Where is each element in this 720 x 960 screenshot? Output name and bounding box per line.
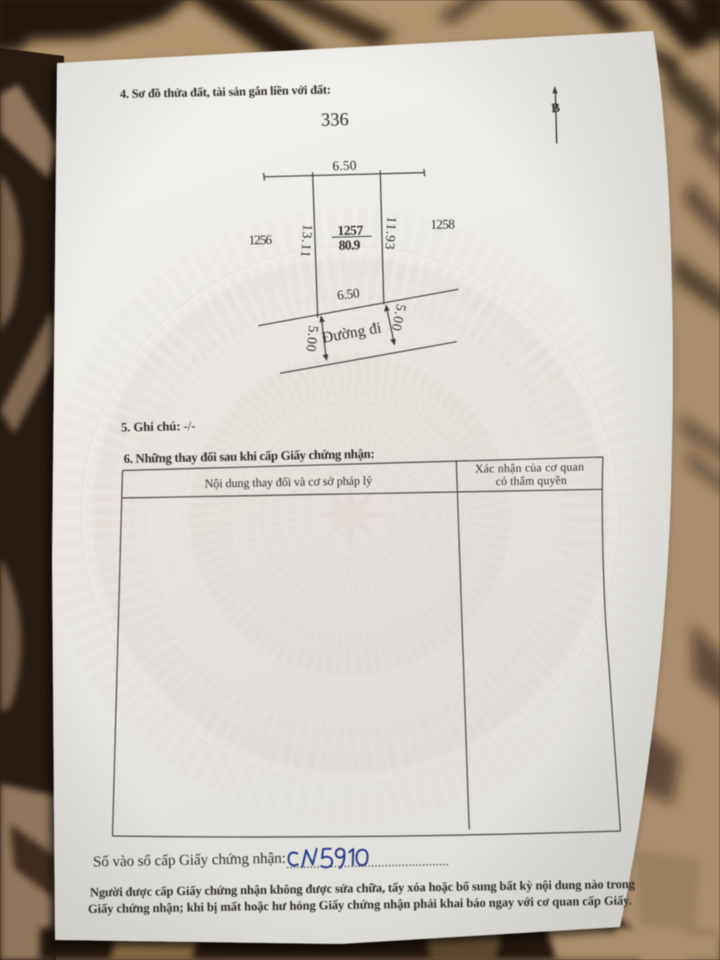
- svg-text:1258: 1258: [430, 216, 455, 231]
- svg-text:6.50: 6.50: [336, 285, 361, 303]
- svg-text:1256: 1256: [248, 232, 272, 247]
- svg-text:có thẩm quyền: có thẩm quyền: [496, 473, 567, 488]
- svg-text:80.9: 80.9: [339, 237, 361, 252]
- svg-text:5.00: 5.00: [303, 325, 321, 353]
- svg-text:B: B: [551, 100, 561, 116]
- svg-text:13.11: 13.11: [298, 224, 315, 258]
- svg-text:1257: 1257: [337, 223, 363, 238]
- svg-text:11.93: 11.93: [382, 216, 399, 250]
- svg-text:5. Ghi chú: -/-: 5. Ghi chú: -/-: [121, 419, 196, 435]
- svg-text:6.50: 6.50: [332, 158, 357, 174]
- svg-text:336: 336: [321, 110, 349, 131]
